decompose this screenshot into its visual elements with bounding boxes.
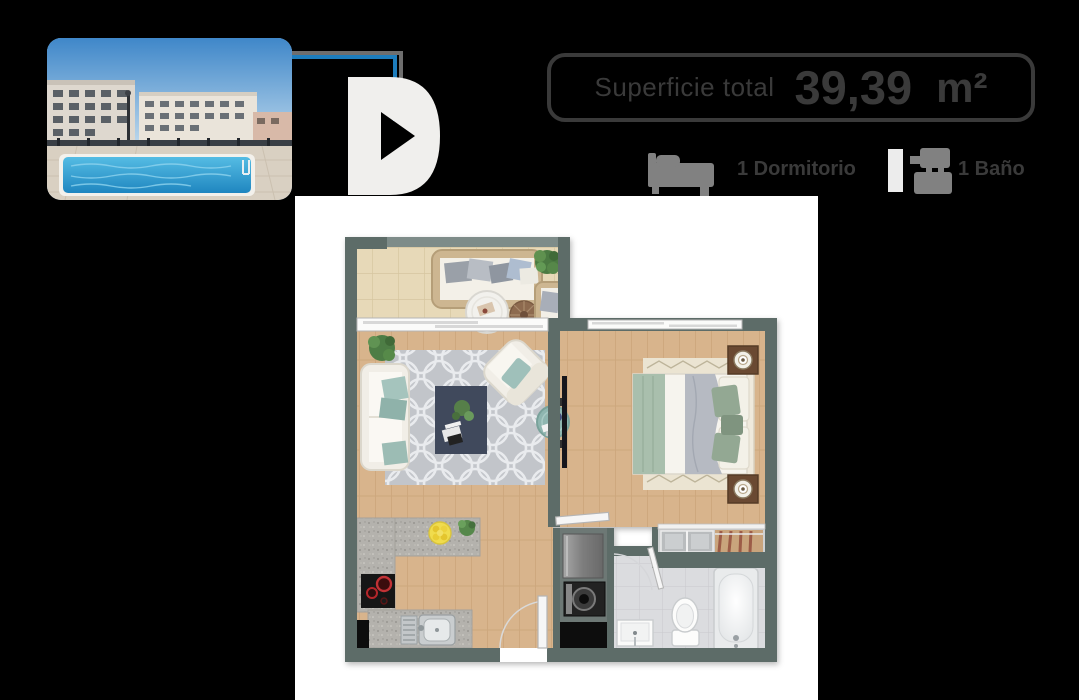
bathroom-sink	[617, 620, 653, 646]
bed-icon	[648, 149, 720, 202]
coffee-table	[435, 386, 487, 454]
utility-closet	[557, 534, 609, 648]
terrace-slider-window	[357, 318, 548, 331]
area-badge-unit: m²	[936, 67, 987, 109]
tv	[562, 376, 567, 468]
lemon-plate	[429, 522, 451, 544]
bedroom-furniture	[633, 346, 758, 503]
utility-cabinet	[557, 622, 609, 648]
water-heater	[563, 534, 603, 578]
toilet	[672, 598, 699, 646]
terrace-plant	[534, 250, 559, 274]
bedroom-closet-contents	[661, 530, 763, 552]
bathrooms-label: 1 Baño	[958, 158, 1025, 181]
entry-opening	[500, 648, 547, 662]
shower-glass-panel	[888, 149, 903, 192]
floor-plan-panel	[295, 196, 818, 700]
living-furniture	[361, 335, 569, 485]
floor-plan	[295, 196, 818, 700]
terrace-railing	[387, 237, 558, 247]
bedrooms-label: 1 Dormitorio	[737, 158, 856, 181]
area-badge: Superficie total 39,39 m²	[547, 53, 1035, 122]
area-badge-label: Superficie total	[595, 72, 775, 103]
kitchen-sink	[418, 615, 455, 645]
living-bedroom-wall	[548, 331, 560, 527]
building-pool-illustration	[47, 38, 292, 200]
specs-row: 1 Dormitorio 1 Baño	[640, 140, 1060, 200]
letter-d-shape	[348, 77, 440, 195]
closet-track	[658, 524, 765, 529]
building-pool-photo	[47, 38, 292, 200]
dish-rack	[401, 616, 417, 644]
entry-door	[538, 596, 547, 648]
unit-type-letter: D	[348, 77, 440, 195]
shower-icon	[908, 148, 954, 201]
area-badge-value: 39,39	[795, 64, 913, 111]
